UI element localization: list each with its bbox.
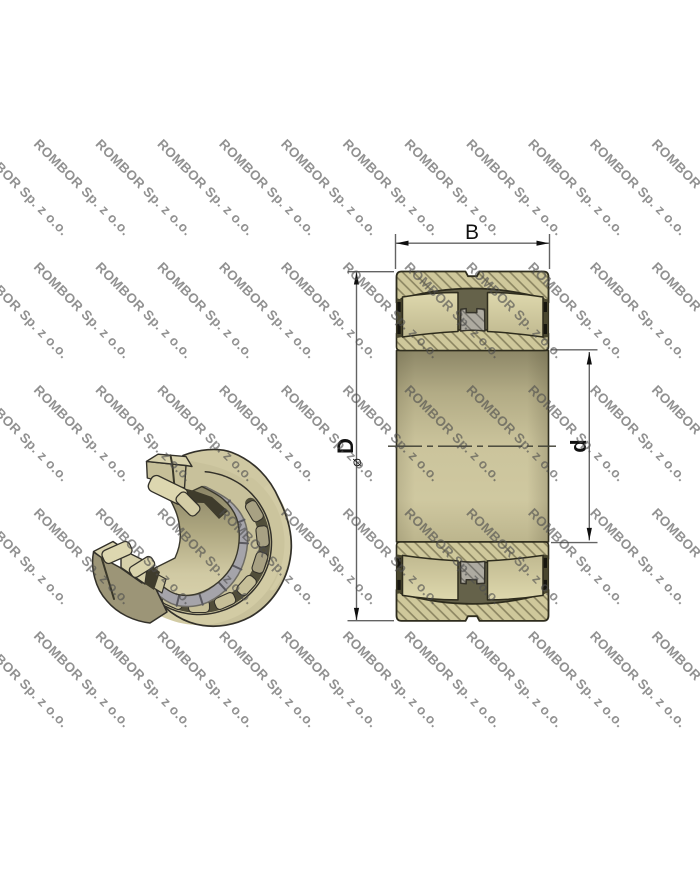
svg-text:B: B: [465, 221, 479, 244]
